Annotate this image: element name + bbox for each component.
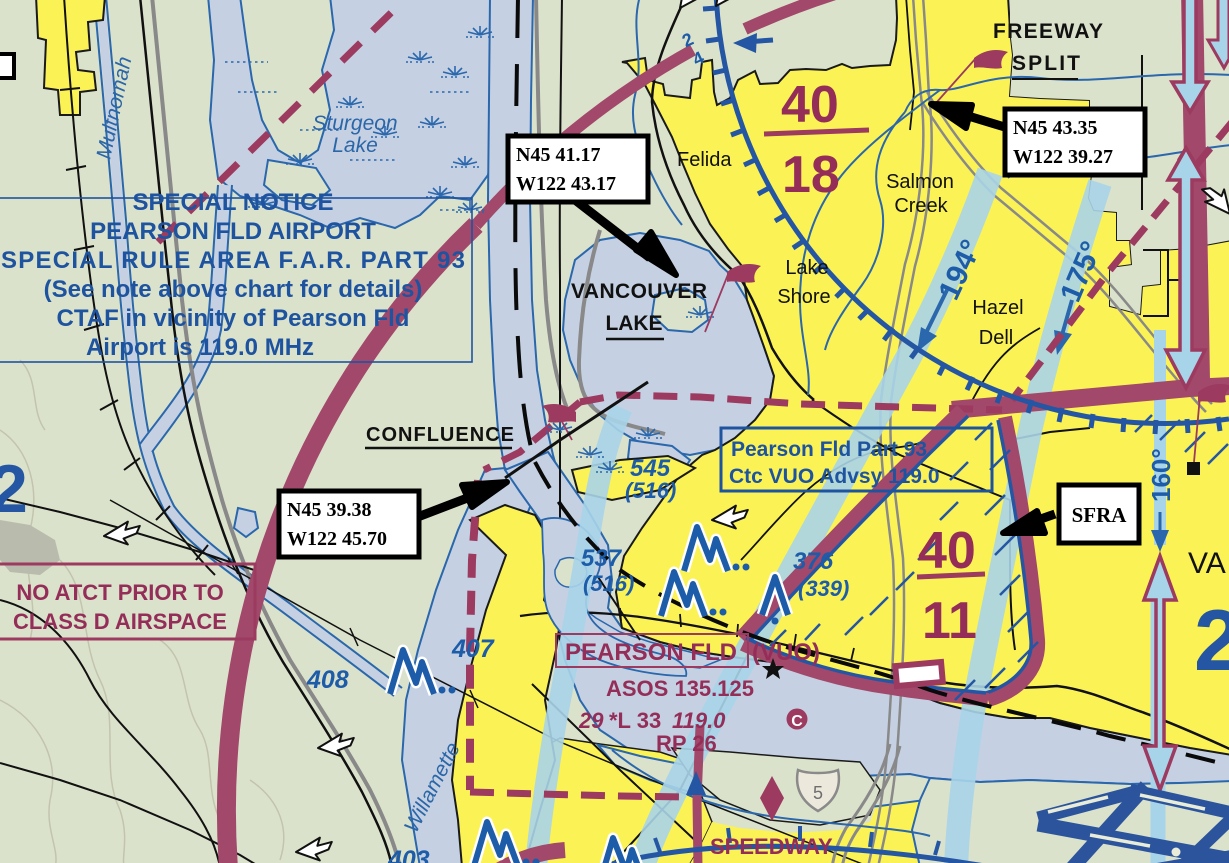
svg-text:VANCOUVER: VANCOUVER <box>571 280 707 303</box>
svg-text:SFRA: SFRA <box>1072 503 1128 527</box>
svg-text:Shore: Shore <box>777 286 830 308</box>
svg-text:LAKE: LAKE <box>606 312 663 335</box>
svg-text:ASOS 135.125: ASOS 135.125 <box>606 676 754 701</box>
svg-text:2: 2 <box>1194 593 1229 689</box>
svg-text:537: 537 <box>581 545 623 572</box>
svg-text:CLASS D AIRSPACE: CLASS D AIRSPACE <box>13 609 227 634</box>
svg-text:N45 39.38: N45 39.38 <box>287 499 371 521</box>
svg-text:Airport is 119.0 MHz: Airport is 119.0 MHz <box>86 334 314 361</box>
svg-text:40: 40 <box>918 522 976 580</box>
svg-text:SPECIAL NOTICE: SPECIAL NOTICE <box>133 189 334 216</box>
svg-text:(516): (516) <box>625 478 676 503</box>
svg-text:VA: VA <box>1188 547 1226 580</box>
svg-text:N45 41.17: N45 41.17 <box>516 144 600 166</box>
svg-text:407: 407 <box>451 635 495 663</box>
svg-text:2: 2 <box>0 451 28 527</box>
svg-text:5: 5 <box>813 783 823 803</box>
svg-text:Creek: Creek <box>894 195 948 217</box>
svg-text:18: 18 <box>782 146 840 204</box>
svg-text:40: 40 <box>781 76 839 134</box>
svg-text:SPECIAL RULE AREA F.A.R. PART: SPECIAL RULE AREA F.A.R. PART 93 <box>1 247 465 274</box>
svg-text:Salmon: Salmon <box>886 171 954 193</box>
svg-text:RP 26: RP 26 <box>656 731 717 756</box>
svg-text:119.0: 119.0 <box>672 708 726 733</box>
svg-text:(VUO): (VUO) <box>752 639 820 666</box>
svg-text:Lake: Lake <box>332 134 378 157</box>
svg-text:FREEWAY: FREEWAY <box>993 20 1103 43</box>
svg-text:Dell: Dell <box>979 327 1013 349</box>
svg-text:Ctc VUO Advsy 119.0: Ctc VUO Advsy 119.0 <box>729 465 940 488</box>
svg-text:NO ATCT PRIOR TO: NO ATCT PRIOR TO <box>16 580 223 605</box>
svg-text:PEARSON FLD: PEARSON FLD <box>565 639 737 666</box>
svg-text:Hazel: Hazel <box>972 297 1023 319</box>
svg-text:N45 43.35: N45 43.35 <box>1013 117 1097 139</box>
svg-text:(339): (339) <box>798 576 849 601</box>
svg-text:(See note above chart for deta: (See note above chart for details) <box>44 276 423 303</box>
svg-text:Lake: Lake <box>785 257 828 279</box>
svg-text:Felida: Felida <box>677 149 732 171</box>
svg-text:W122 43.17: W122 43.17 <box>516 173 616 195</box>
svg-text:PEARSON FLD AIRPORT: PEARSON FLD AIRPORT <box>90 218 376 245</box>
svg-text:(516): (516) <box>583 571 634 596</box>
svg-text:403: 403 <box>387 846 430 863</box>
svg-text:*L 33: *L 33 <box>609 708 661 733</box>
svg-text:Pearson Fld Part 93: Pearson Fld Part 93 <box>731 438 927 461</box>
svg-text:11: 11 <box>922 592 977 650</box>
svg-text:W122 45.70: W122 45.70 <box>287 528 387 550</box>
svg-text:CTAF in vicinity of Pearson Fl: CTAF in vicinity of Pearson Fld <box>57 305 410 332</box>
svg-text:SPLIT: SPLIT <box>1012 52 1080 75</box>
svg-text:SPEEDWAY: SPEEDWAY <box>710 834 833 859</box>
svg-text:29: 29 <box>578 708 604 733</box>
svg-text:W122 39.27: W122 39.27 <box>1013 146 1113 168</box>
svg-text:408: 408 <box>306 666 349 694</box>
svg-text:Sturgeon: Sturgeon <box>312 112 397 135</box>
svg-text:160°: 160° <box>1146 448 1176 502</box>
svg-text:C: C <box>791 713 803 730</box>
svg-text:CONFLUENCE: CONFLUENCE <box>366 424 514 446</box>
svg-text:376: 376 <box>793 548 834 575</box>
